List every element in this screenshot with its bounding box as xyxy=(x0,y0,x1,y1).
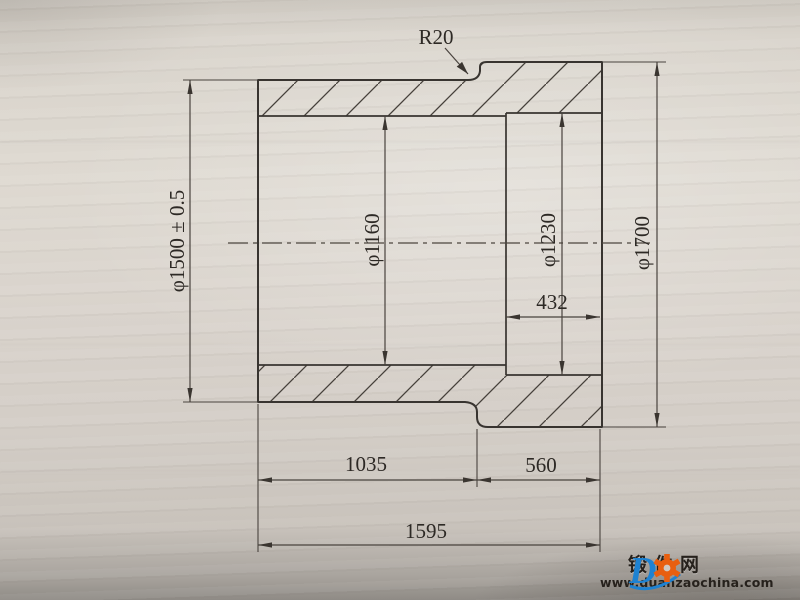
dim-432-label: 432 xyxy=(536,290,568,314)
dimension-phi1700: φ1700 xyxy=(603,62,666,427)
dim-1595-label: 1595 xyxy=(405,519,447,543)
dimension-1595: 1595 xyxy=(258,519,600,545)
photographed-forging-drawing: R20 φ1500 ± 0.5 φ1160 φ1230 φ1700 xyxy=(0,0,800,600)
dimension-phi1160: φ1160 xyxy=(360,116,385,365)
r20-label: R20 xyxy=(418,25,453,49)
dimension-1035: 1035 xyxy=(258,452,477,480)
phi1230-label: φ1230 xyxy=(536,213,560,267)
technical-drawing: R20 φ1500 ± 0.5 φ1160 φ1230 φ1700 xyxy=(0,0,800,600)
phi1500-label: φ1500 ± 0.5 xyxy=(165,190,189,292)
phi1160-label: φ1160 xyxy=(360,213,384,266)
dim-560-label: 560 xyxy=(525,453,557,477)
dimension-432: 432 xyxy=(506,290,600,317)
dim-1035-label: 1035 xyxy=(345,452,387,476)
dimension-phi1230: φ1230 xyxy=(536,113,562,375)
dimension-r20: R20 xyxy=(418,25,468,74)
dimension-phi1500: φ1500 ± 0.5 xyxy=(165,80,257,402)
hatch-top-band xyxy=(258,62,602,116)
dimension-560: 560 xyxy=(477,453,600,480)
watermark: D 锻件网 www.duanzaochina.com xyxy=(626,546,800,600)
phi1700-label: φ1700 xyxy=(630,216,654,270)
r20-leader-line xyxy=(445,48,468,74)
duanzaochina-logo: D xyxy=(626,546,686,596)
